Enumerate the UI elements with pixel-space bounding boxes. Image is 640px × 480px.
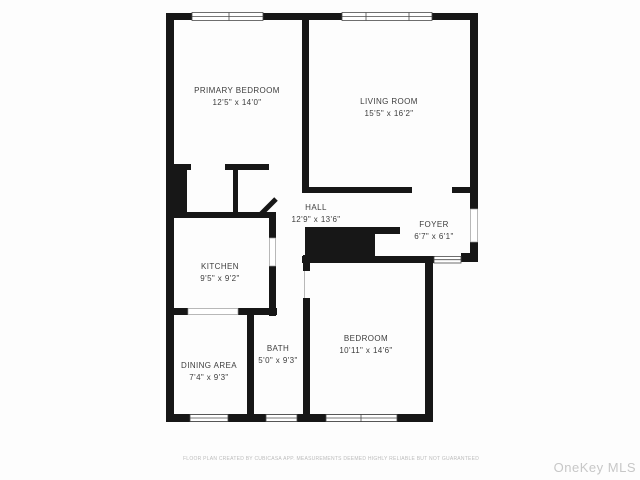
disclaimer-text: FLOOR PLAN CREATED BY CUBICASA APP. MEAS…	[183, 456, 479, 462]
room-name: LIVING ROOM	[360, 96, 418, 108]
room-dims: 9'5" x 9'2"	[200, 273, 239, 285]
utility-shaft	[172, 170, 187, 216]
room-dims: 10'11" x 14'6"	[339, 345, 392, 357]
stairwell-block	[305, 227, 400, 260]
room-label-kitchen: KITCHEN9'5" x 9'2"	[200, 261, 239, 285]
room-label-hall: HALL12'9" x 13'6"	[291, 202, 340, 226]
room-label-bedroom: BEDROOM10'11" x 14'6"	[339, 333, 392, 357]
room-dims: 6'7" x 6'1"	[414, 231, 453, 243]
room-label-living-room: LIVING ROOM15'5" x 16'2"	[360, 96, 418, 120]
room-name: DINING AREA	[181, 360, 237, 372]
room-name: FOYER	[414, 219, 453, 231]
room-label-bath: BATH5'0" x 9'3"	[258, 343, 297, 367]
room-name: BEDROOM	[339, 333, 392, 345]
room-name: PRIMARY BEDROOM	[194, 85, 280, 97]
room-label-dining-area: DINING AREA7'4" x 9'3"	[181, 360, 237, 384]
watermark-onekey-mls: OneKey MLS	[554, 460, 636, 475]
room-name: BATH	[258, 343, 297, 355]
floorplan-page: PRIMARY BEDROOM12'5" x 14'0"LIVING ROOM1…	[0, 0, 640, 480]
room-label-primary-bedroom: PRIMARY BEDROOM12'5" x 14'0"	[194, 85, 280, 109]
room-label-foyer: FOYER6'7" x 6'1"	[414, 219, 453, 243]
room-name: KITCHEN	[200, 261, 239, 273]
room-name: HALL	[291, 202, 340, 214]
room-dims: 15'5" x 16'2"	[360, 108, 418, 120]
room-dims: 5'0" x 9'3"	[258, 355, 297, 367]
room-dims: 12'9" x 13'6"	[291, 214, 340, 226]
room-dims: 12'5" x 14'0"	[194, 97, 280, 109]
room-dims: 7'4" x 9'3"	[181, 372, 237, 384]
floorplan-drawing	[0, 0, 640, 480]
